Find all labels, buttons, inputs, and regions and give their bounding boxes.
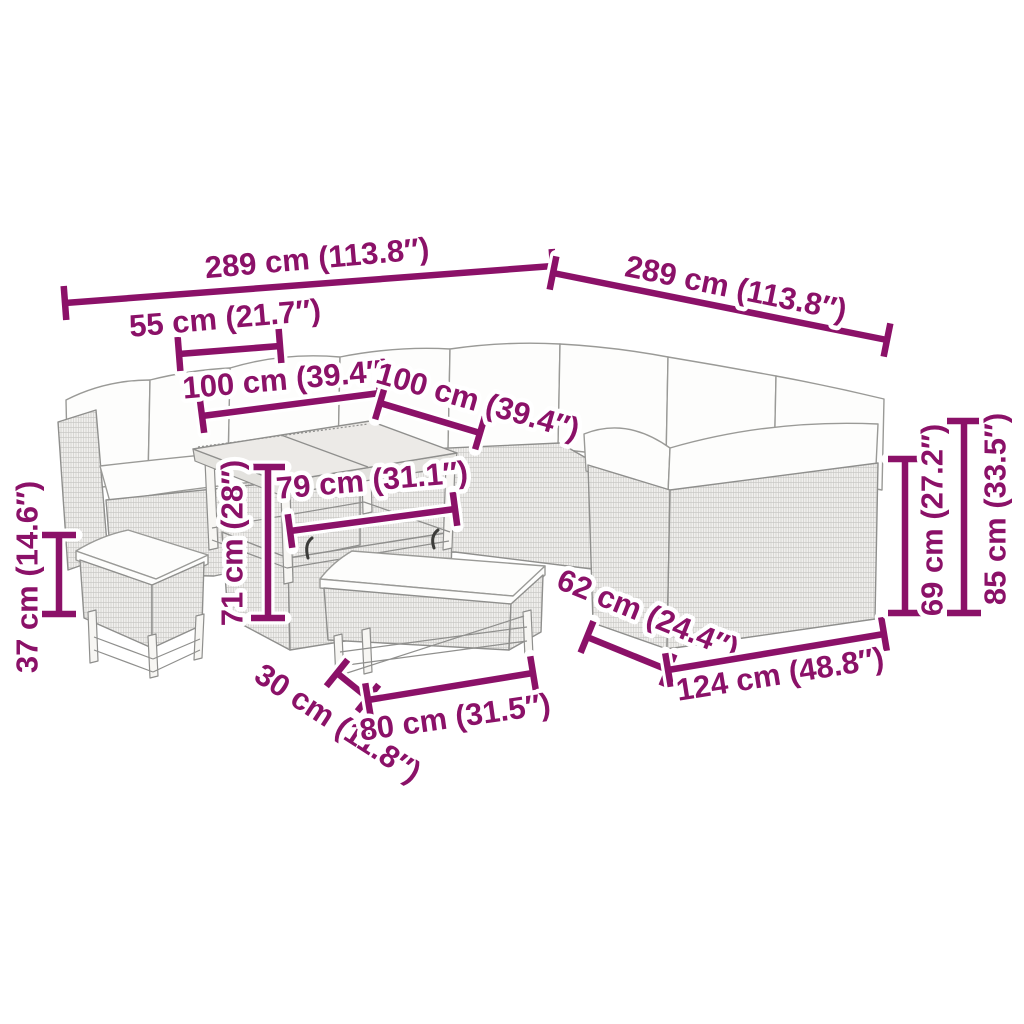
dimension-line [200,399,204,433]
dimension-line [453,492,457,526]
dimension-label-total-height-85: 85 cm (33.5″) [978,413,1013,605]
dimension-line [64,286,67,320]
dimension-line [178,337,181,371]
dimension-label-table-height-71: 71 cm (28″) [215,460,250,627]
dimension-label-seat-back-height-69: 69 cm (27.2″) [915,424,950,616]
dimension-line [279,329,282,363]
dimension-label-bench-height-37: 37 cm (14.6″) [10,481,45,673]
dimension-diagram-canvas: 289 cm (113.8″)289 cm (113.8″)55 cm (21.… [0,0,1024,1024]
bench-leg [194,614,204,660]
dimension-line [288,514,292,548]
product-dimension-diagram: 289 cm (113.8″)289 cm (113.8″)55 cm (21.… [0,0,1024,1024]
bench-leg [88,610,98,663]
